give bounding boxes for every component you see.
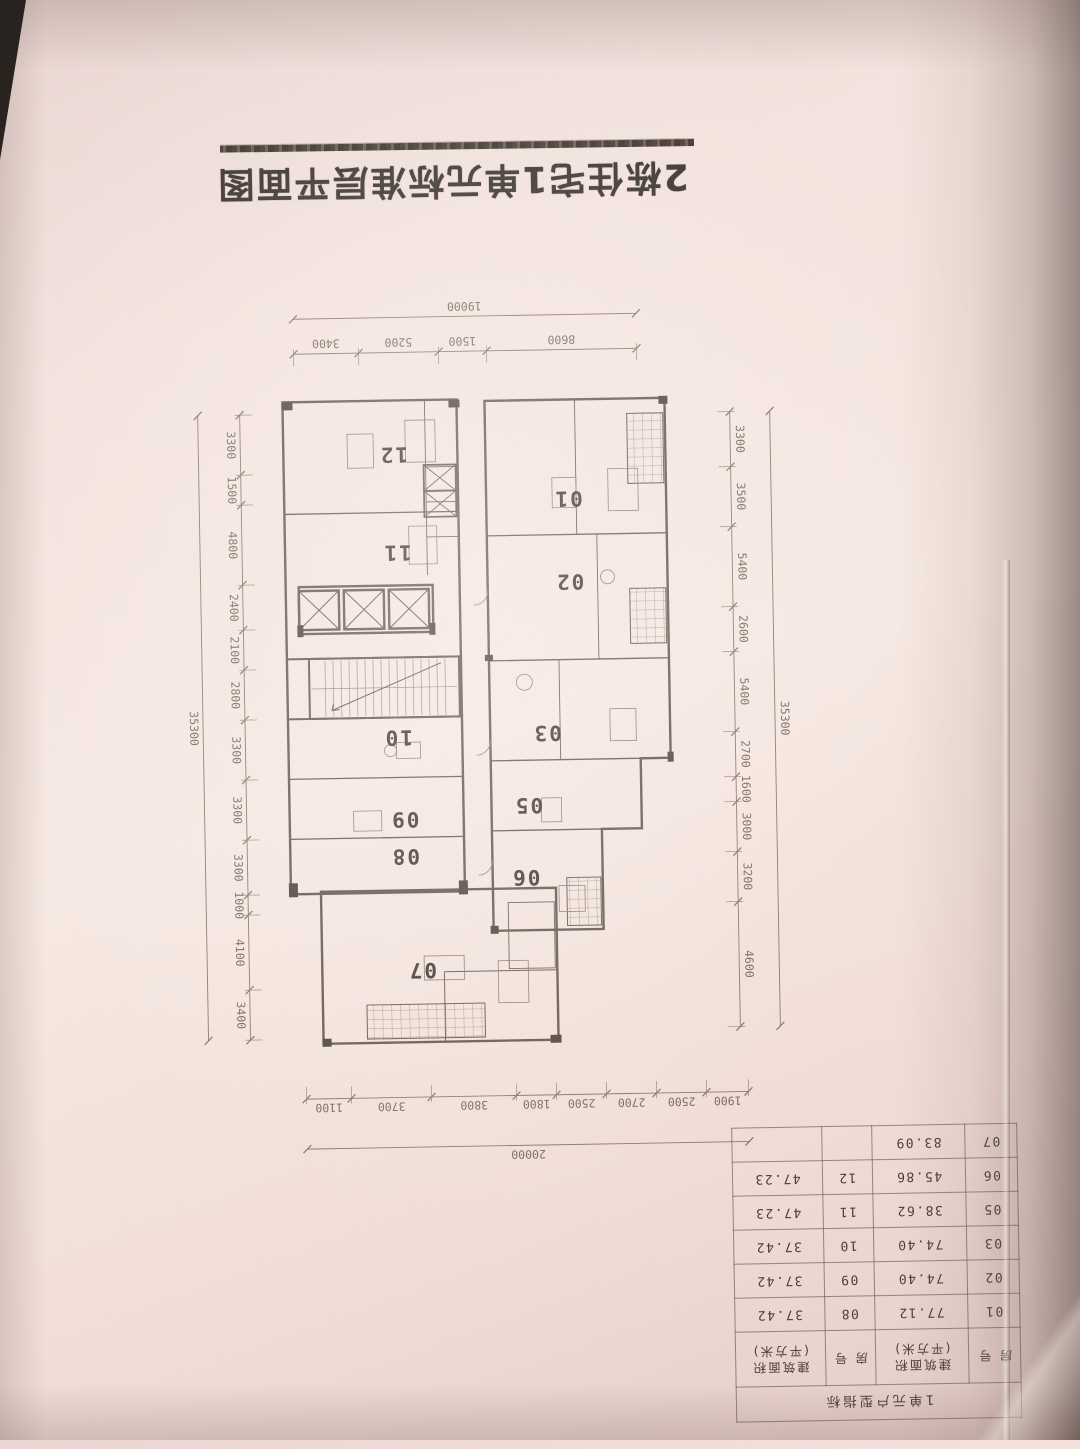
dim-label: 3300	[231, 854, 245, 882]
unit-label-08: 08	[391, 844, 421, 869]
dim-label: 5200	[384, 335, 412, 349]
table-cell: 11	[822, 1194, 873, 1229]
table-cell: 07	[965, 1123, 1018, 1158]
table-cell: 45.86	[872, 1158, 966, 1194]
dim-label: 4100	[233, 939, 247, 967]
unit-label-10: 10	[383, 725, 413, 750]
table-cell: 47.23	[733, 1195, 823, 1231]
table-header-cell-2: 房 号	[825, 1330, 876, 1386]
dim-label: 8600	[547, 332, 575, 346]
plan-walls	[280, 396, 678, 1048]
table-cell	[732, 1127, 822, 1163]
dim-label: 1100	[315, 1100, 343, 1114]
dim-label: 19000	[447, 299, 482, 314]
dim-label: 3300	[230, 796, 244, 824]
table-title-cell: 1单元户型指标	[736, 1382, 1022, 1422]
dim-label: 2700	[618, 1095, 646, 1109]
table-row: 0374.401037.42	[733, 1225, 1019, 1264]
stairwell	[309, 656, 460, 719]
dim-label: 1500	[225, 476, 239, 504]
table-cell: 83.09	[871, 1124, 965, 1160]
dim-label: 1500	[448, 334, 476, 348]
dim-label: 3400	[234, 1001, 248, 1029]
dim-label: 1600	[739, 775, 753, 803]
dim-label: 3300	[229, 736, 243, 764]
dim-label: 5400	[737, 677, 751, 705]
dim-label: 2400	[227, 594, 241, 622]
dim-label: 1800	[523, 1097, 551, 1111]
dim-label: 4800	[226, 531, 240, 559]
table-cell: 06	[965, 1157, 1018, 1192]
dim-label: 2800	[228, 681, 242, 709]
service-lifts	[424, 464, 457, 517]
table-cell: 08	[824, 1296, 875, 1331]
drawing-title: 2栋住宅1单元标准层平面图	[218, 147, 689, 213]
table-row: 0645.861247.23	[732, 1157, 1018, 1196]
unit-label-06: 06	[511, 865, 541, 890]
unit-label-01: 01	[553, 486, 583, 511]
dim-label: 2500	[668, 1094, 696, 1108]
unit-label-09: 09	[390, 807, 420, 832]
dim-label: 4600	[742, 950, 756, 978]
unit-label-03: 03	[532, 721, 562, 746]
dim-label: 2700	[738, 740, 752, 768]
table-header-cell-0: 房 号	[968, 1327, 1021, 1383]
table-cell: 02	[967, 1259, 1020, 1294]
photographed-floorplan-page: { "page_title": "2栋住宅1单元标准层平面图", "table"…	[0, 0, 1080, 1440]
unit-index-table: 1单元户型指标房 号建筑面积(平方米)房 号建筑面积(平方米)0177.1208…	[731, 1123, 1022, 1423]
dim-label: 5400	[735, 552, 749, 580]
table-row: 0177.120837.42	[735, 1293, 1021, 1332]
dim-label: 35300	[187, 711, 202, 746]
table-cell: 37.42	[734, 1263, 824, 1299]
dim-label: 1900	[714, 1094, 742, 1108]
table-cell: 09	[824, 1262, 875, 1297]
elevator-bank	[299, 585, 434, 634]
table-cell: 47.23	[732, 1161, 822, 1197]
table-cell: 12	[822, 1160, 873, 1195]
table-cell: 37.42	[735, 1297, 825, 1333]
table-cell: 03	[966, 1225, 1019, 1260]
dim-label: 20000	[511, 1147, 546, 1162]
dim-label: 3500	[734, 482, 748, 510]
dim-label: 3200	[741, 862, 755, 890]
dim-label: 3800	[460, 1098, 488, 1112]
unit-label-07: 07	[407, 958, 437, 983]
table-cell: 77.12	[874, 1294, 968, 1330]
table-cell: 05	[966, 1191, 1019, 1226]
dim-label: 3300	[224, 431, 238, 459]
dim-label: 2100	[227, 636, 241, 664]
table-row: 0783.09	[732, 1123, 1018, 1162]
unit-label-05: 05	[514, 793, 544, 818]
dim-label: 3000	[740, 812, 754, 840]
table-cell: 74.40	[874, 1260, 968, 1296]
unit-index-table-wrap: 1单元户型指标房 号建筑面积(平方米)房 号建筑面积(平方米)0177.1208…	[731, 1123, 1022, 1423]
document-sheet: 0102030506070809101112 19002500270025001…	[0, 0, 1080, 1449]
dim-label: 3300	[733, 425, 747, 453]
table-header-cell-1: 建筑面积(平方米)	[875, 1328, 969, 1385]
table-cell: 01	[968, 1293, 1021, 1328]
wall-accents	[280, 396, 678, 1048]
dim-label: 3400	[312, 336, 340, 350]
table-cell: 38.62	[872, 1192, 966, 1228]
dim-label: 35300	[778, 701, 793, 736]
dim-label: 1000	[232, 891, 246, 919]
dim-label: 2500	[568, 1096, 596, 1110]
table-cell: 74.40	[873, 1226, 967, 1262]
table-header-cell-3: 建筑面积(平方米)	[735, 1331, 826, 1388]
table-row: 0274.400937.42	[734, 1259, 1020, 1298]
unit-label-11: 11	[382, 540, 412, 565]
table-cell	[821, 1126, 872, 1161]
unit-label-02: 02	[555, 569, 585, 594]
unit-label-12: 12	[378, 442, 408, 467]
table-row: 0538.621147.23	[733, 1191, 1019, 1230]
table-cell: 10	[823, 1228, 874, 1263]
table-cell: 37.42	[733, 1229, 823, 1265]
dim-label: 2600	[736, 615, 750, 643]
dim-label: 3700	[378, 1099, 406, 1113]
